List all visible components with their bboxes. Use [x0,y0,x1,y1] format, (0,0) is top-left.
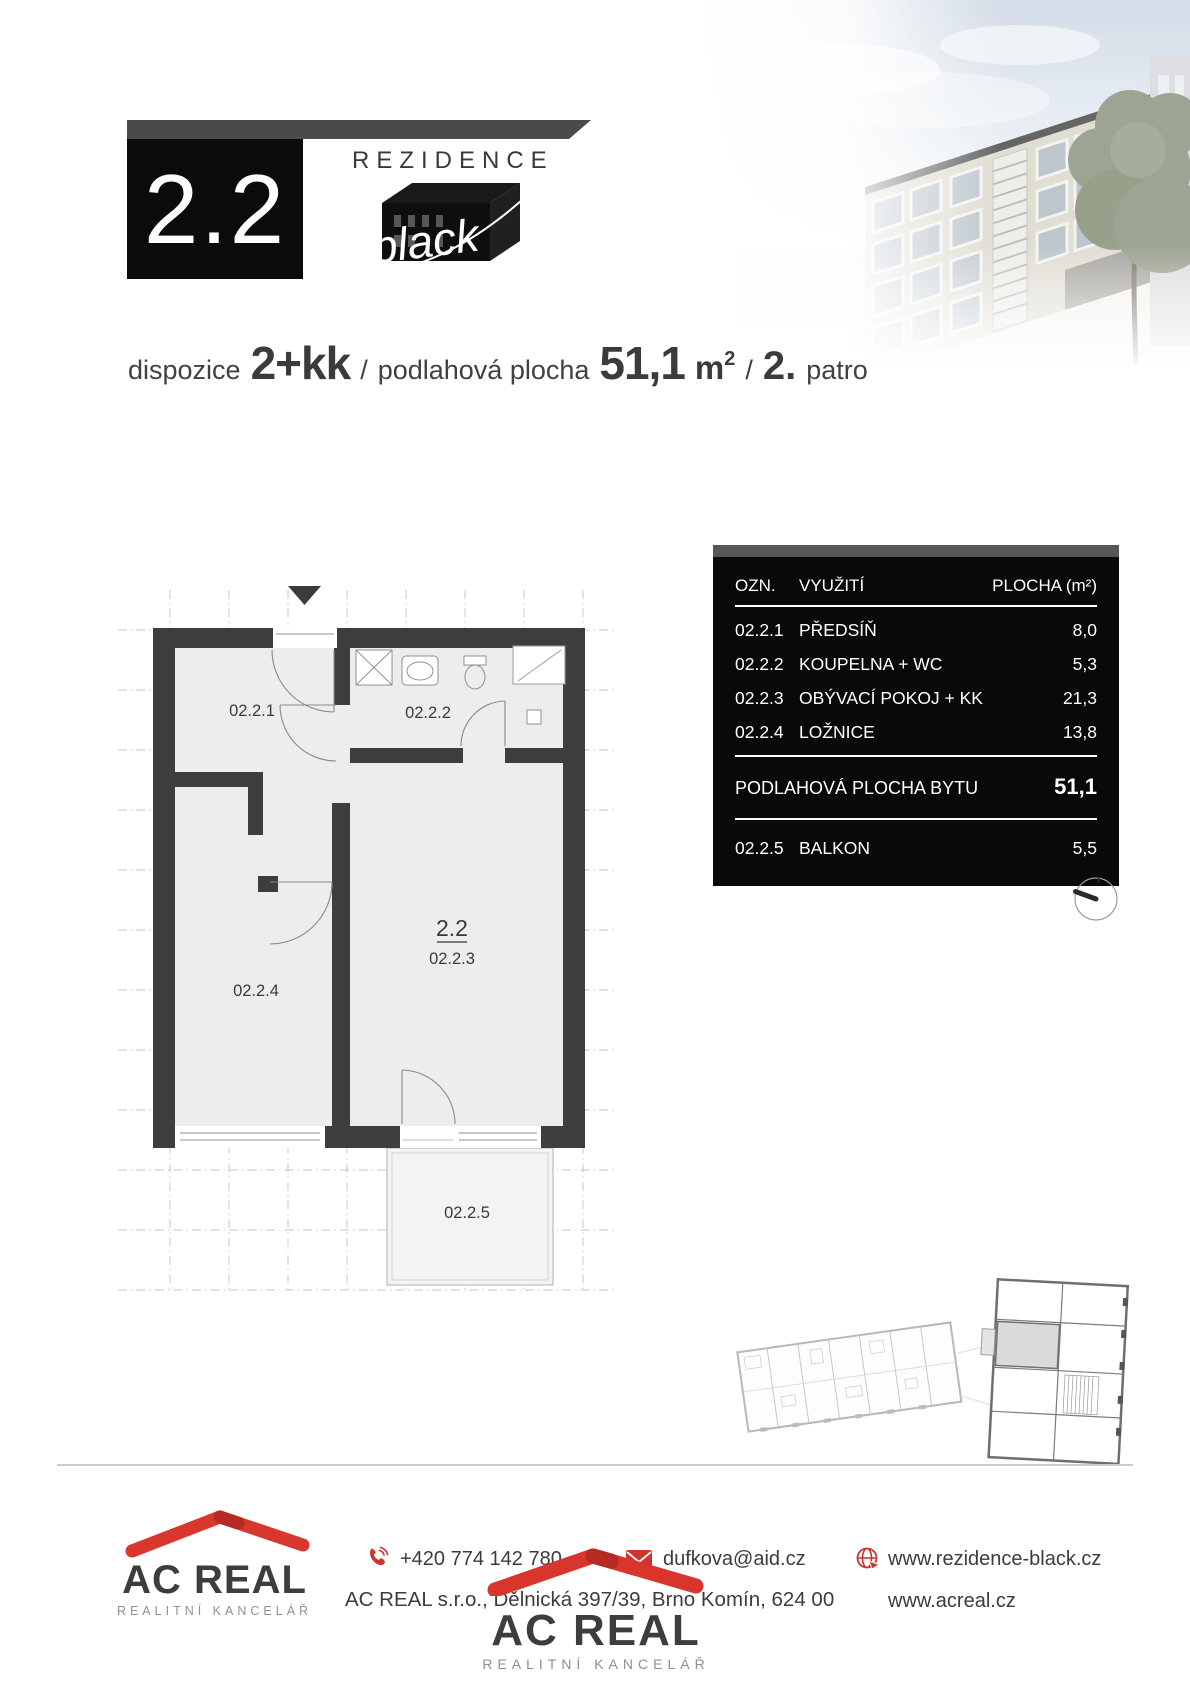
black-cube-logo: black [352,175,537,280]
unit-number: 2.2 [144,160,286,258]
floor-value: 2. [763,344,796,389]
table-header-row: OZN. VYUŽITÍ PLOCHA (m²) [735,573,1097,599]
agency-logo-tagline: REALITNÍ KANCELÁŘ [112,1604,317,1618]
room-label-unit: 2.2 [436,915,468,941]
total-label: PODLAHOVÁ PLOCHA BYTU [735,764,1054,812]
cell-designation: 02.2.5 [735,826,799,870]
table-accent-bar [713,545,1119,557]
globe-icon [855,1546,881,1572]
cell-area: 8,0 [1073,613,1097,647]
cell-area: 5,3 [1073,647,1097,681]
table-row: 02.2.4 LOŽNICE 13,8 [735,715,1097,749]
building-render-graphic [690,0,1190,365]
room-label-bathroom: 02.2.2 [405,704,451,722]
cell-designation: 02.2.4 [735,715,799,749]
separator: / [360,355,368,386]
table-divider [735,605,1097,607]
cell-usage: LOŽNICE [799,715,1063,749]
area-label: podlahová plocha [378,355,590,386]
overview-left-wing [737,1322,961,1433]
table-total-row: PODLAHOVÁ PLOCHA BYTU 51,1 [735,763,1097,812]
room-label-bedroom: 02.2.4 [233,982,279,1000]
building-overview-plan [725,1275,1170,1470]
brand-black-logo: black [352,175,537,280]
area-unit-exponent: 2 [724,348,735,370]
floor-plan: 02.2.1 02.2.2 2.2 02.2.3 02.2.4 02.2.5 [105,525,665,1305]
highlighted-unit [995,1321,1059,1368]
cell-usage: KOUPELNA + WC [799,647,1073,681]
disposition-value: 2+kk [251,336,351,390]
cell-area: 13,8 [1063,715,1097,749]
cell-usage: OBÝVACÍ POKOJ + KK [799,681,1063,715]
brand-rezidence: REZIDENCE [352,147,537,175]
cell-usage: PŘEDSÍŇ [799,613,1073,647]
cell-area: 5,5 [1073,826,1097,870]
col-usage: VYUŽITÍ [799,573,992,599]
footer-divider [57,1464,1133,1466]
area-table: OZN. VYUŽITÍ PLOCHA (m²) 02.2.1 PŘEDSÍŇ … [713,545,1119,886]
unit-number-box: 2.2 [127,139,303,279]
agency-roof-icon [120,1505,315,1560]
cell-designation: 02.2.3 [735,681,799,715]
phone-icon [366,1546,390,1570]
cell-designation: 02.2.1 [735,613,799,647]
col-area: PLOCHA (m²) [992,573,1097,599]
header-accent-bar [127,120,591,139]
cell-area: 21,3 [1063,681,1097,715]
cell-usage: BALKON [799,826,1073,870]
center-roof-icon [483,1548,708,1596]
entrance-arrow-icon [288,586,321,605]
washer-icon [527,710,541,724]
table-row: 02.2.3 OBÝVACÍ POKOJ + KK 21,3 [735,681,1097,715]
table-divider [735,755,1097,757]
center-logo-tagline: REALITNÍ KANCELÁŘ [446,1656,746,1672]
apartment-summary: dispozice 2+kk / podlahová plocha 51,1 m… [128,336,868,390]
apartment-floor [165,640,573,1136]
room-label-living: 02.2.3 [429,950,475,968]
separator: / [745,355,753,386]
cell-designation: 02.2.2 [735,647,799,681]
project-website[interactable]: www.rezidence-black.cz [888,1548,1101,1571]
room-label-balcony: 02.2.5 [444,1204,490,1222]
table-row: 02.2.1 PŘEDSÍŇ 8,0 [735,613,1097,647]
table-balcony-row: 02.2.5 BALKON 5,5 [735,826,1097,870]
building-render-photo [690,0,1190,365]
total-area: 51,1 [1054,763,1097,811]
area-unit: m2 [695,348,735,387]
floor-label: patro [806,355,868,386]
table-divider [735,818,1097,820]
compass-icon [1065,868,1127,930]
shaft-niche [513,646,565,684]
disposition-label: dispozice [128,355,241,386]
overview-right-block [976,1279,1129,1464]
table-row: 02.2.2 KOUPELNA + WC 5,3 [735,647,1097,681]
col-designation: OZN. [735,573,799,599]
room-label-hall: 02.2.1 [229,702,275,720]
sink-icon [402,656,438,685]
area-value: 51,1 [599,336,685,390]
center-logo-name: AC REAL [446,1606,746,1656]
agency-logo-name: AC REAL [112,1558,317,1603]
company-website[interactable]: www.acreal.cz [888,1590,1016,1613]
shower-icon [356,650,392,685]
